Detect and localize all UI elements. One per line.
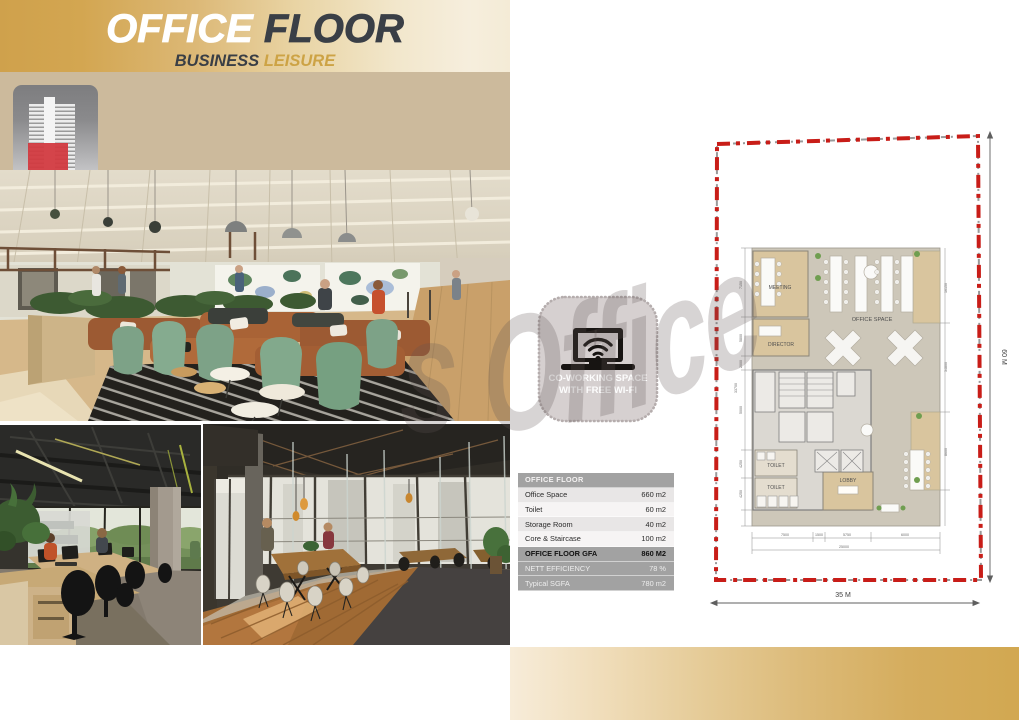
svg-text:CO-WORKING SPACE: CO-WORKING SPACE	[548, 373, 647, 384]
svg-text:8600: 8600	[944, 448, 948, 456]
svg-text:4250: 4250	[739, 490, 743, 498]
svg-text:33700: 33700	[734, 383, 738, 393]
svg-text:2000: 2000	[739, 360, 743, 368]
svg-text:5800: 5800	[739, 334, 743, 342]
svg-text:TOILET: TOILET	[767, 485, 784, 491]
svg-text:25000: 25000	[839, 545, 849, 549]
svg-text:7500: 7500	[781, 533, 789, 537]
svg-text:5750: 5750	[843, 533, 851, 537]
svg-text:7150: 7150	[739, 281, 743, 289]
svg-text:WITH FREE WI-FI: WITH FREE WI-FI	[559, 385, 637, 396]
svg-text:MEETING: MEETING	[769, 285, 792, 291]
svg-text:5000: 5000	[739, 406, 743, 414]
svg-text:60 M: 60 M	[1000, 349, 1007, 365]
svg-text:35 M: 35 M	[835, 592, 851, 599]
svg-text:16150: 16150	[944, 283, 948, 293]
svg-text:OFFICE SPACE: OFFICE SPACE	[852, 317, 893, 323]
svg-text:TOILET: TOILET	[767, 463, 784, 469]
svg-text:DIRECTOR: DIRECTOR	[768, 342, 794, 348]
svg-text:34800: 34800	[944, 362, 948, 372]
svg-text:1500: 1500	[815, 533, 823, 537]
svg-text:6000: 6000	[901, 533, 909, 537]
svg-text:LOBBY: LOBBY	[840, 478, 857, 484]
svg-text:4250: 4250	[739, 460, 743, 468]
